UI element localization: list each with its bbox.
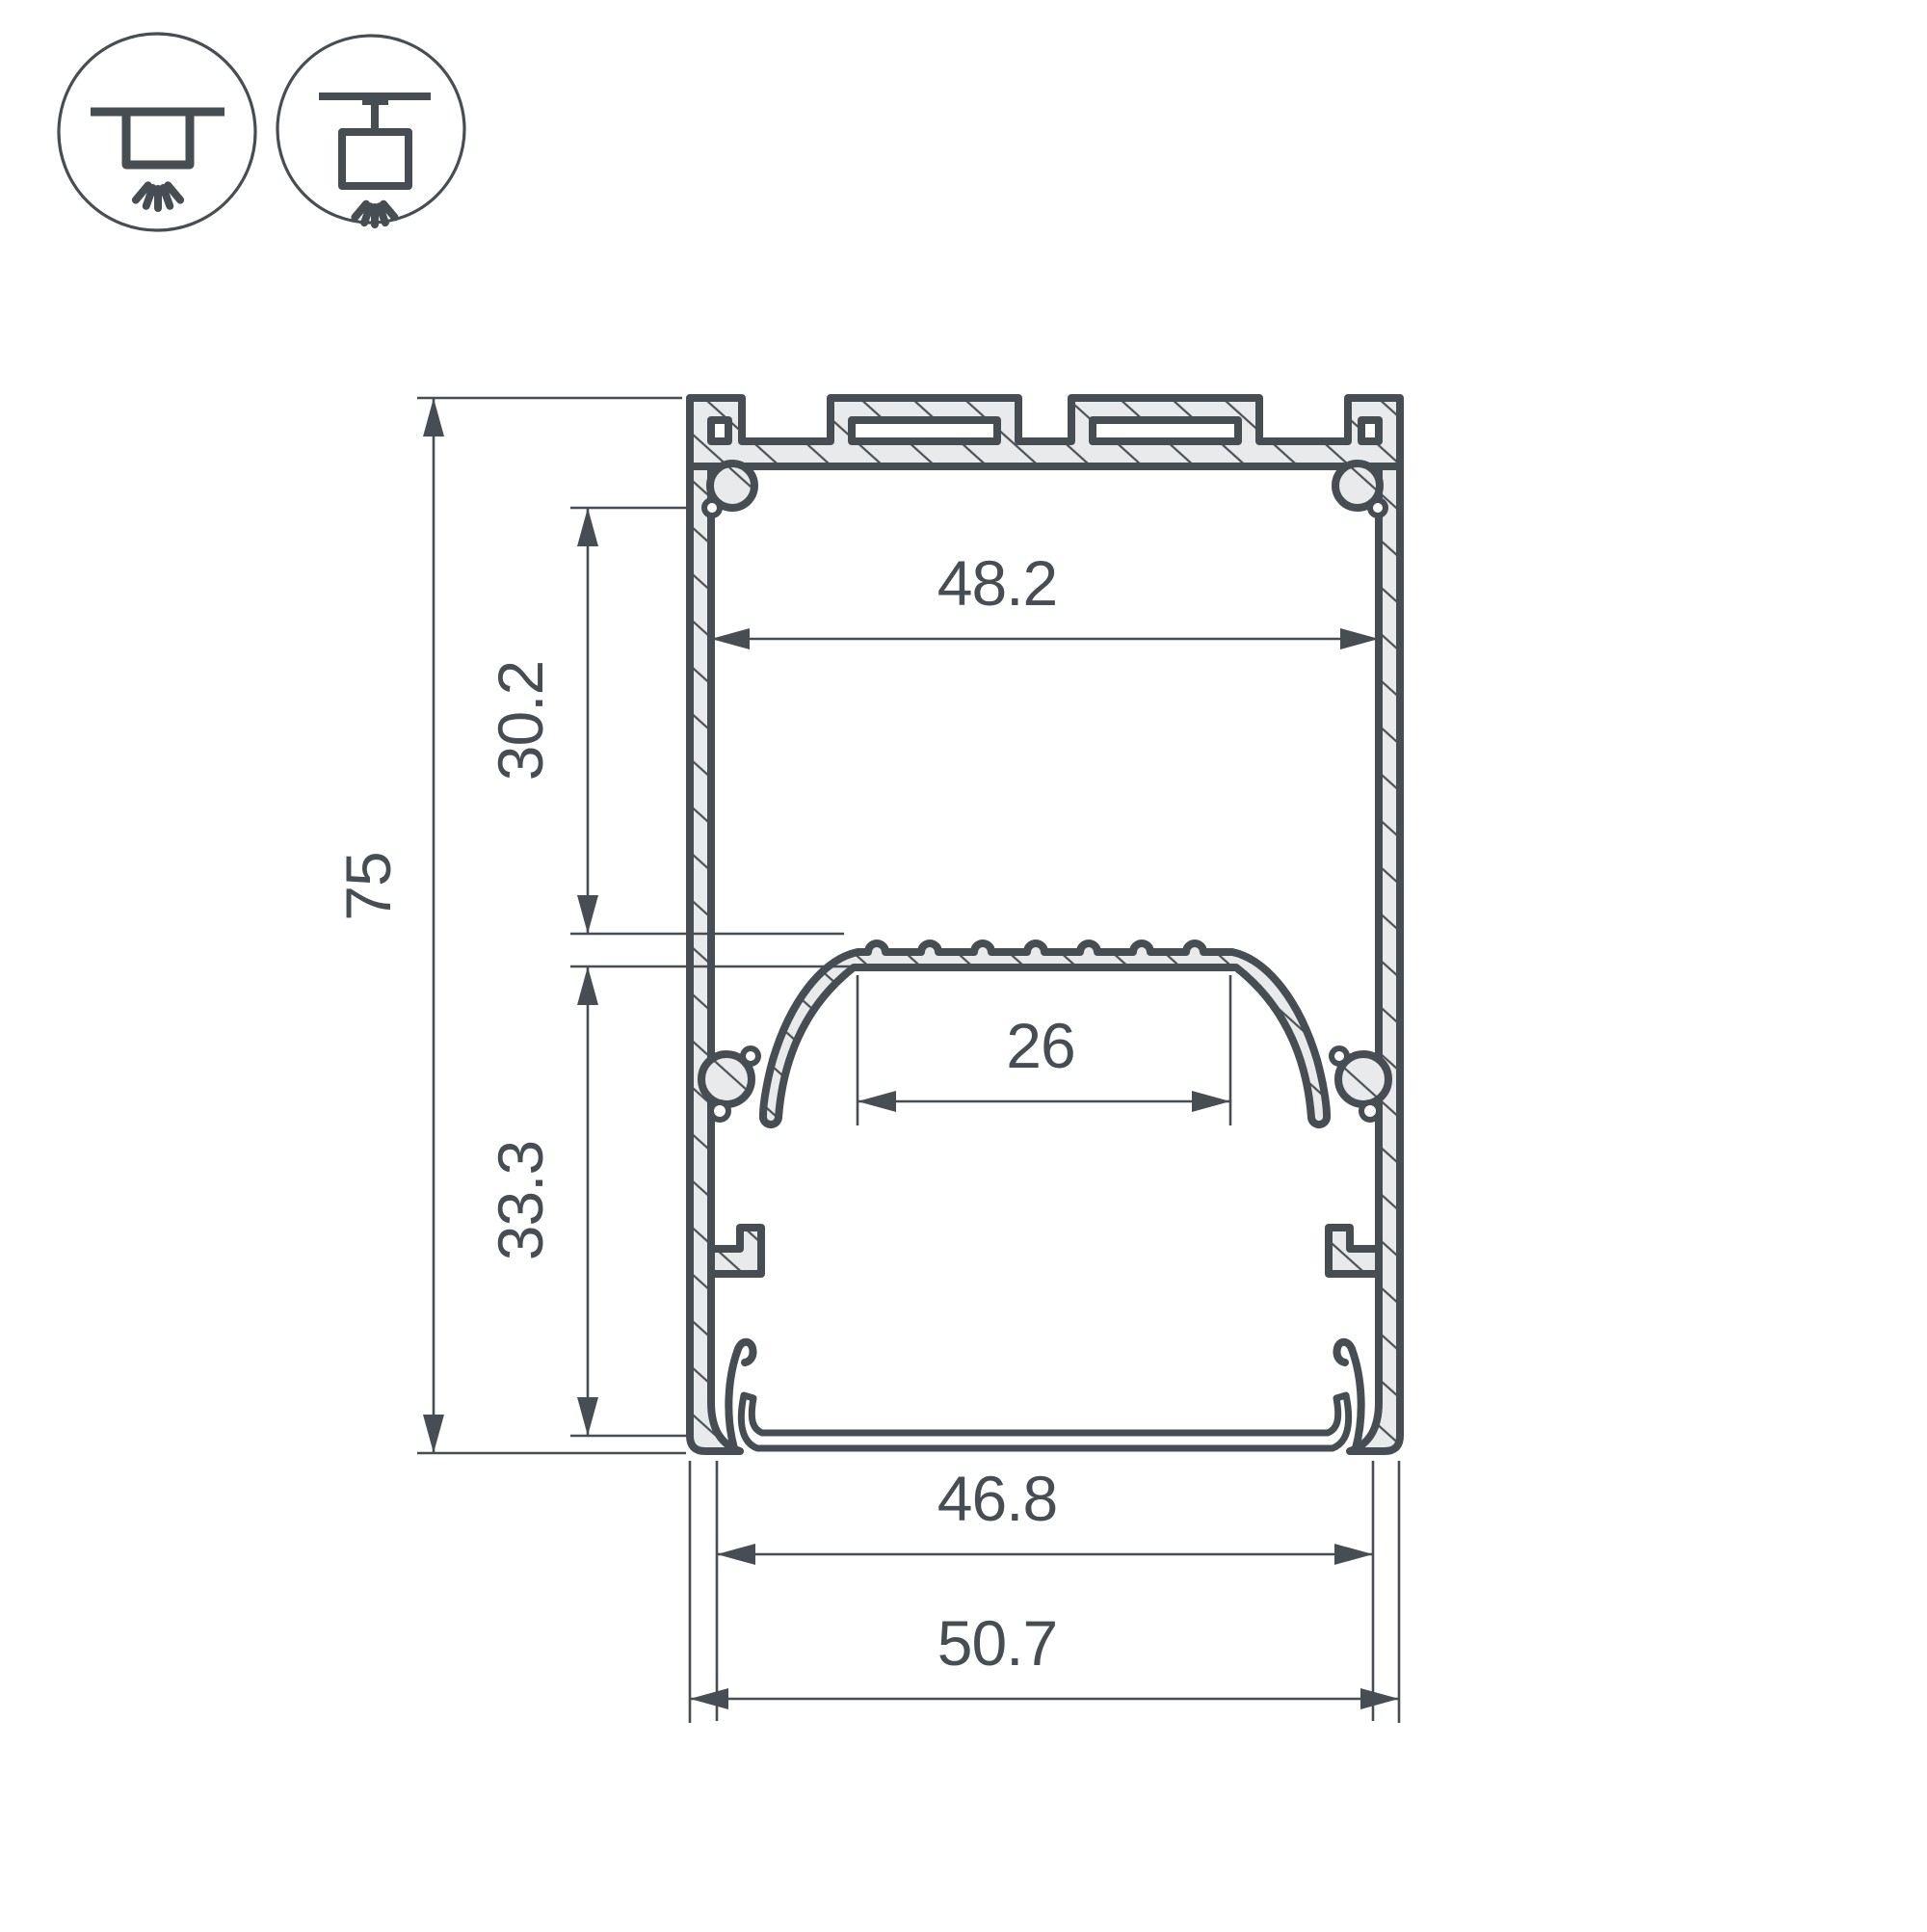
boss-notch [743,1048,758,1064]
spring-flange-left [728,1349,738,1448]
mount-icons [59,34,464,230]
boss-notch [711,1102,728,1120]
arrowhead-up [577,966,598,1005]
dim-lower-cavity-height: 33.3 [485,966,886,1436]
clip-ledge-left [711,1228,761,1274]
profile-technical-drawing: 75 30.2 33.3 48.2 [0,0,1927,1927]
dim-bottom-inner-width: 46.8 [717,1461,1373,1721]
arrowhead-right [1340,628,1379,649]
arrowhead-left [858,1091,896,1112]
dim-label-overall-height: 75 [332,852,404,920]
arrowhead-left [711,628,750,649]
dim-label-led-platform-width: 26 [1006,1010,1074,1081]
dim-label-lower-cavity-height: 33.3 [485,1141,556,1260]
arrowhead-left [717,1544,755,1565]
arrowhead-down [423,1415,444,1453]
arrowhead-left [690,1688,728,1709]
left-wall [690,453,740,1451]
arrowhead-down [577,895,598,934]
boss-notch [1370,500,1386,516]
arrowhead-up [577,508,598,546]
light-rays [136,185,180,208]
dim-upper-cavity-height: 30.2 [485,508,844,934]
luminaire-box [342,132,409,186]
boss-notch [1332,1048,1347,1064]
arrowhead-right [1360,1688,1399,1709]
dim-label-bottom-inner-width: 46.8 [937,1463,1057,1534]
dim-overall-height: 75 [332,398,686,1453]
dim-led-platform-width: 26 [858,975,1230,1125]
arrowhead-up [423,398,444,437]
dim-top-inner-width: 48.2 [711,547,1379,649]
clip-ledge-right [1329,1228,1379,1274]
boss-notch [704,500,720,516]
boss-notch [1361,1102,1379,1120]
arrowhead-right [1334,1544,1373,1565]
dimensions: 75 30.2 33.3 48.2 [332,398,1399,1723]
top-plate-t-slots [690,398,1400,466]
spring-flange-right [1352,1349,1361,1448]
arrowhead-right [1192,1091,1230,1112]
arrowhead-down [577,1397,598,1436]
luminaire-box [126,112,190,165]
dim-label-upper-cavity-height: 30.2 [485,661,556,781]
pendant-suspension-mount-icon [277,36,464,225]
surface-ceiling-mount-icon [59,34,255,230]
light-rays [355,204,394,225]
dim-label-overall-width: 50.7 [937,1607,1057,1679]
dim-label-top-inner-width: 48.2 [937,547,1057,619]
diffuser-plate [741,1395,1348,1448]
right-wall [1350,453,1400,1451]
